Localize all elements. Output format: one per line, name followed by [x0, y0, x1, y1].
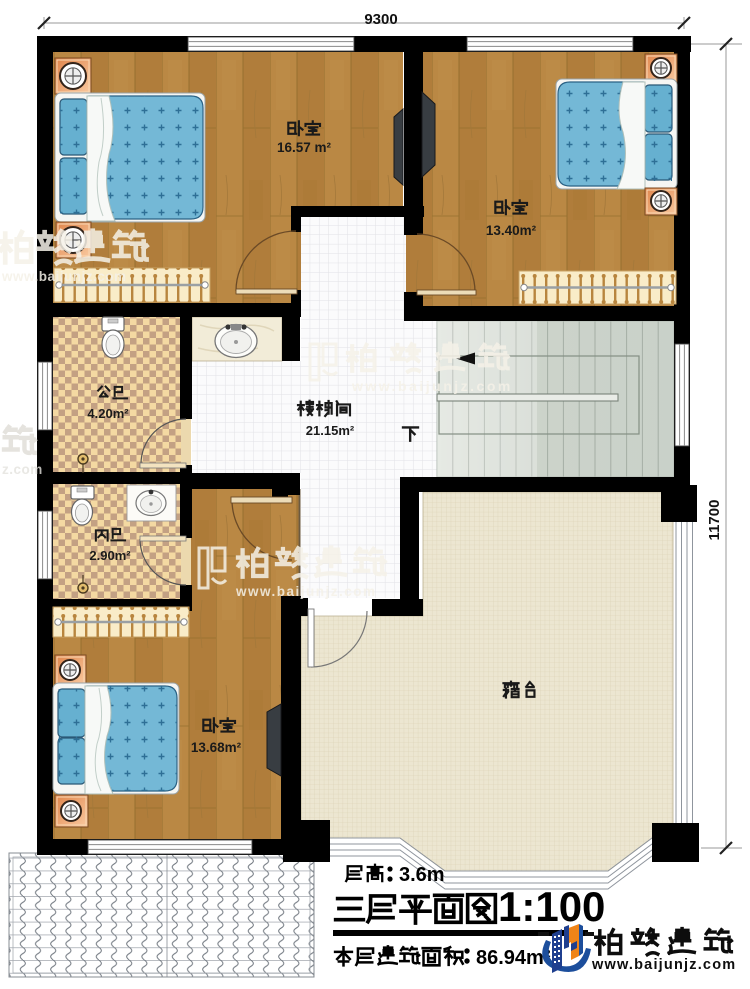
- svg-text:www.baijunjz.com: www.baijunjz.com: [235, 584, 377, 599]
- svg-text:9300: 9300: [364, 11, 397, 28]
- svg-text:86.94m²: 86.94m²: [476, 947, 551, 969]
- svg-text:3.6m: 3.6m: [399, 864, 445, 886]
- svg-text:16.57 m²: 16.57 m²: [277, 140, 332, 155]
- svg-text:13.68m²: 13.68m²: [191, 740, 242, 755]
- svg-text:www.baijunjz.com: www.baijunjz.com: [351, 378, 513, 394]
- svg-text:11700: 11700: [706, 500, 723, 541]
- svg-text:www.baijunjz.com: www.baijunjz.com: [591, 957, 736, 973]
- svg-text:z.com: z.com: [2, 462, 43, 477]
- svg-text:www.baijunjz.com: www.baijunjz.com: [1, 269, 127, 284]
- svg-text:13.40m²: 13.40m²: [486, 223, 537, 238]
- svg-text:1:100: 1:100: [498, 883, 605, 930]
- svg-text:4.20m²: 4.20m²: [87, 406, 129, 421]
- svg-text:21.15m²: 21.15m²: [306, 423, 355, 438]
- svg-text:2.90m²: 2.90m²: [89, 548, 131, 563]
